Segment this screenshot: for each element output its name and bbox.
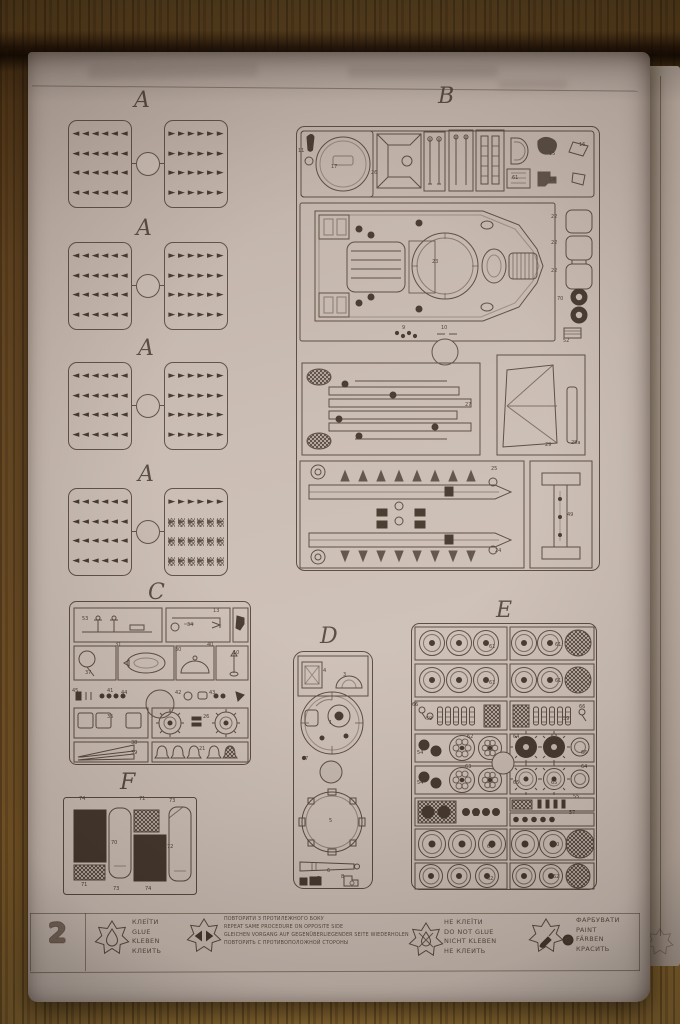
track-links-panel: ►►►►►►►►►►►►►►►►►►►►►►►►	[164, 362, 228, 450]
track-link-part: ►	[207, 372, 214, 381]
part-number: 15	[549, 152, 555, 157]
part-number: 16	[579, 143, 585, 148]
part-number: 37	[85, 671, 91, 676]
track-link-part: ◄	[92, 537, 99, 546]
legend-item-no-glue: НЕ КЛЕЇТИ DO NOT GLUE NICHT KLEBEN НЕ КЛ…	[444, 918, 496, 956]
track-link-part: ►	[188, 537, 195, 546]
track-link-part: ►	[168, 150, 175, 159]
part-number: 24	[495, 549, 501, 554]
track-link-part: ►	[207, 272, 214, 281]
track-link-part: ►	[207, 130, 214, 139]
track-link-part: ►	[217, 189, 224, 198]
track-link-part: ►	[178, 392, 185, 401]
track-link-part: ◄	[101, 498, 108, 507]
paint-badge-icon	[562, 934, 574, 946]
track-link-part: ►	[217, 431, 224, 440]
track-link-part: ◄	[82, 518, 89, 527]
track-link-part: ►	[207, 189, 214, 198]
track-link-part: ◄	[72, 411, 79, 420]
part-number: 7	[305, 757, 308, 762]
part-number: 62	[487, 877, 493, 882]
part-number: 57	[569, 811, 575, 816]
legend-text: НЕ КЛЕИТЬ	[444, 947, 496, 957]
track-link-part: ►	[197, 431, 204, 440]
legend-text: GLEICHEN VORGANG AUF GEGENÜBERLIEGENDER …	[224, 932, 409, 940]
track-link-part: ◄	[92, 130, 99, 139]
track-link-part: ►	[168, 392, 175, 401]
part-number: 64	[551, 735, 557, 740]
part-number: 54	[417, 781, 423, 786]
part-number: 64	[581, 765, 587, 770]
part-number: 61	[555, 679, 561, 684]
track-link-part: ►	[178, 537, 185, 546]
part-number: 55	[573, 795, 579, 800]
track-link-part: ►	[217, 411, 224, 420]
part-number: 43	[209, 691, 215, 696]
track-link-part: ◄	[111, 518, 118, 527]
part-number: 26	[371, 171, 377, 176]
track-link-part: ►	[188, 169, 195, 178]
track-link-part: ►	[168, 311, 175, 320]
track-link-part: ►	[197, 272, 204, 281]
track-link-part: ◄	[72, 130, 79, 139]
legend-text: КЛЕИТЬ	[132, 947, 161, 957]
track-link-part: ►	[207, 411, 214, 420]
sprue-label-d: D	[320, 624, 338, 649]
bleed-through-text	[498, 80, 568, 89]
sprue-b-drawing	[295, 125, 601, 572]
track-link-part: ►	[197, 372, 204, 381]
track-link-part: ►	[178, 291, 185, 300]
part-number: 71	[81, 883, 87, 888]
part-number: 66	[579, 705, 585, 710]
track-link-part: ◄	[121, 372, 128, 381]
track-link-part: ◄	[92, 498, 99, 507]
track-link-part: ◄	[82, 130, 89, 139]
legend-text: NICHT KLEBEN	[444, 937, 496, 947]
track-link-part: ►	[178, 252, 185, 261]
track-link-part: ►	[188, 498, 195, 507]
legend-divider	[85, 913, 86, 971]
track-link-part: ►	[168, 537, 175, 546]
paint-icon	[528, 918, 564, 954]
track-link-part: ◄	[111, 272, 118, 281]
track-link-part: ►	[217, 557, 224, 566]
track-link-part: ◄	[111, 498, 118, 507]
sprue-label-a4: A	[138, 462, 154, 487]
track-link-part: ◄	[101, 431, 108, 440]
track-link-part: ►	[207, 537, 214, 546]
track-link-part: ►	[197, 130, 204, 139]
part-number: 23	[432, 260, 438, 265]
track-link-part: ►	[178, 189, 185, 198]
track-links-panel: ►►►►►►►►►►►►►►►►►►►►►►►►	[164, 488, 228, 576]
track-link-part: ►	[188, 291, 195, 300]
track-link-part: ►	[168, 498, 175, 507]
instruction-sheet: A A A A B C D E F ◄◄◄◄◄◄◄◄◄◄◄◄◄◄◄◄◄◄◄◄◄◄…	[28, 52, 650, 1002]
track-link-part: ►	[197, 518, 204, 527]
legend-text: FÄRBEN	[576, 935, 620, 945]
track-link-part: ►	[207, 150, 214, 159]
part-number: 71	[139, 797, 145, 802]
part-number: 6	[327, 869, 330, 874]
page-number: 2	[48, 918, 67, 949]
part-number: 53	[82, 617, 88, 622]
track-link-part: ◄	[82, 311, 89, 320]
track-link-part: ◄	[121, 291, 128, 300]
sprue-label-b: B	[438, 84, 454, 109]
track-link-part: ►	[207, 498, 214, 507]
legend-text: ФАРБУВАТИ	[576, 916, 620, 926]
track-link-part: ►	[217, 272, 224, 281]
track-link-part: ◄	[111, 392, 118, 401]
track-link-part: ◄	[111, 537, 118, 546]
track-link-part: ◄	[121, 252, 128, 261]
part-number: 8	[341, 875, 344, 880]
track-link-part: ►	[188, 518, 195, 527]
track-link-part: ◄	[92, 372, 99, 381]
track-link-part: ►	[217, 372, 224, 381]
track-link-part: ►	[168, 411, 175, 420]
track-link-part: ◄	[92, 150, 99, 159]
track-link-part: ◄	[111, 431, 118, 440]
track-link-part: ◄	[121, 557, 128, 566]
track-link-part: ◄	[101, 150, 108, 159]
part-number: 9	[402, 326, 405, 331]
track-link-part: ◄	[111, 130, 118, 139]
track-link-part: ◄	[111, 189, 118, 198]
part-number: 1	[329, 721, 332, 726]
track-link-part: ◄	[72, 431, 79, 440]
part-number: 45	[72, 689, 78, 694]
track-link-part: ►	[188, 150, 195, 159]
track-link-part: ►	[168, 169, 175, 178]
part-number: 73	[169, 799, 175, 804]
legend-top-rule	[30, 913, 640, 914]
legend-item-glue: КЛЕЇТИ GLUE KLEBEN КЛЕИТЬ	[132, 918, 161, 956]
part-number: 74	[79, 797, 85, 802]
track-links-panel: ◄◄◄◄◄◄◄◄◄◄◄◄◄◄◄◄◄◄◄◄◄◄◄◄	[68, 120, 132, 208]
track-link-part: ◄	[111, 372, 118, 381]
track-link-part: ◄	[82, 252, 89, 261]
part-number: 35	[107, 715, 113, 720]
track-link-part: ◄	[92, 557, 99, 566]
legend-item-repeat: ПОВТОРИТИ З ПРОТИЛЕЖНОГО БОКУ REPEAT SAM…	[224, 916, 409, 948]
track-link-part: ►	[217, 311, 224, 320]
track-link-part: ◄	[82, 498, 89, 507]
part-number: 11	[298, 149, 304, 154]
track-link-part: ◄	[92, 411, 99, 420]
track-link-part: ◄	[121, 272, 128, 281]
track-link-part: ►	[178, 150, 185, 159]
track-links-panel: ◄◄◄◄◄◄◄◄◄◄◄◄◄◄◄◄◄◄◄◄◄◄◄◄	[68, 362, 132, 450]
part-number: 61	[555, 643, 561, 648]
track-link-part: ►	[197, 189, 204, 198]
track-link-part: ►	[217, 392, 224, 401]
track-link-part: ◄	[72, 537, 79, 546]
part-number: 61	[489, 645, 495, 650]
part-number: 70	[111, 841, 117, 846]
track-link-part: ►	[168, 252, 175, 261]
legend-text: KLEBEN	[132, 937, 161, 947]
track-link-part: ◄	[92, 189, 99, 198]
track-link-part: ►	[217, 518, 224, 527]
track-link-part: ►	[197, 498, 204, 507]
part-number: 21	[199, 747, 205, 752]
track-link-part: ◄	[101, 189, 108, 198]
part-number: 13	[213, 609, 219, 614]
sprue-d-drawing	[292, 650, 374, 890]
track-link-part: ►	[168, 557, 175, 566]
bleed-through-text	[348, 66, 498, 78]
part-number: 40	[207, 643, 213, 648]
track-link-part: ►	[188, 252, 195, 261]
track-links-panel: ◄◄◄◄◄◄◄◄◄◄◄◄◄◄◄◄◄◄◄◄◄◄◄◄	[68, 242, 132, 330]
track-link-part: ►	[217, 150, 224, 159]
track-link-part: ◄	[72, 557, 79, 566]
part-number: 39	[131, 751, 137, 756]
sprue-connector	[136, 152, 160, 176]
repeat-icon	[186, 918, 222, 954]
track-link-part: ►	[197, 291, 204, 300]
track-link-part: ◄	[92, 252, 99, 261]
track-link-part: ►	[207, 431, 214, 440]
track-link-part: ◄	[101, 557, 108, 566]
track-link-part: ►	[188, 189, 195, 198]
bleed-through-text	[88, 63, 258, 80]
part-number: 52	[563, 339, 569, 344]
track-link-part: ◄	[72, 311, 79, 320]
part-number: 60	[487, 845, 493, 850]
track-link-part: ◄	[82, 431, 89, 440]
track-link-part: ◄	[111, 411, 118, 420]
part-number: 49	[567, 513, 573, 518]
track-link-part: ◄	[82, 169, 89, 178]
sprue-e-drawing	[410, 622, 598, 892]
part-number: 60	[553, 843, 559, 848]
part-number: 63	[465, 765, 471, 770]
track-link-part: ◄	[121, 189, 128, 198]
track-link-part: ►	[217, 291, 224, 300]
part-number: 10	[233, 651, 239, 656]
track-link-part: ►	[188, 372, 195, 381]
sprue-connector	[136, 394, 160, 418]
part-number: 27	[465, 403, 471, 408]
track-link-part: ◄	[111, 557, 118, 566]
legend-text: КЛЕЇТИ	[132, 918, 161, 928]
track-link-part: ►	[188, 392, 195, 401]
track-link-part: ◄	[121, 150, 128, 159]
part-number: 22	[551, 241, 557, 246]
part-number: 28a	[571, 441, 580, 446]
legend-text: ПОВТОРИТЬ С ПРОТИВОПОЛОЖНОЙ СТОРОНЫ	[224, 940, 409, 948]
track-link-part: ◄	[101, 252, 108, 261]
part-number: 61	[512, 176, 518, 181]
track-link-part: ◄	[101, 311, 108, 320]
part-number: 54	[417, 751, 423, 756]
track-link-part: ►	[217, 537, 224, 546]
sprue-f-drawing	[62, 796, 198, 896]
track-link-part: ►	[207, 311, 214, 320]
part-number: 29	[545, 443, 551, 448]
track-link-part: ◄	[72, 392, 79, 401]
part-number: 14	[549, 178, 555, 183]
no-glue-icon	[408, 922, 444, 958]
track-link-part: ◄	[121, 130, 128, 139]
track-link-part: ◄	[121, 431, 128, 440]
track-link-part: ◄	[92, 392, 99, 401]
track-link-part: ◄	[92, 518, 99, 527]
track-link-part: ►	[178, 498, 185, 507]
part-number: 34	[187, 623, 193, 628]
track-link-part: ►	[188, 411, 195, 420]
part-number: 30	[175, 648, 181, 653]
track-link-part: ◄	[111, 252, 118, 261]
part-number: 41	[107, 689, 113, 694]
track-links-panel: ►►►►►►►►►►►►►►►►►►►►►►►►	[164, 120, 228, 208]
part-number: 59	[563, 717, 569, 722]
track-link-part: ◄	[121, 169, 128, 178]
track-link-part: ►	[178, 557, 185, 566]
track-link-part: ►	[197, 411, 204, 420]
track-link-part: ◄	[101, 169, 108, 178]
legend-text: КРАСИТЬ	[576, 945, 620, 955]
track-link-part: ◄	[121, 411, 128, 420]
part-number: 5	[317, 877, 320, 882]
track-link-part: ◄	[101, 291, 108, 300]
sprue-a-3: ◄◄◄◄◄◄◄◄◄◄◄◄◄◄◄◄◄◄◄◄◄◄◄◄ ►►►►►►►►►►►►►►►…	[68, 362, 228, 450]
track-link-part: ◄	[101, 537, 108, 546]
part-number: 22	[551, 269, 557, 274]
track-link-part: ◄	[101, 130, 108, 139]
part-number: 59	[426, 717, 432, 722]
track-link-part: ◄	[82, 272, 89, 281]
track-link-part: ◄	[72, 169, 79, 178]
legend-text: НЕ КЛЕЇТИ	[444, 918, 496, 928]
part-number: 10	[441, 326, 447, 331]
sprue-label-a1: A	[134, 88, 150, 113]
track-link-part: ◄	[92, 311, 99, 320]
sprue-a-4: ◄◄◄◄◄◄◄◄◄◄◄◄◄◄◄◄◄◄◄◄◄◄◄◄ ►►►►►►►►►►►►►►►…	[68, 488, 228, 576]
track-link-part: ◄	[101, 372, 108, 381]
track-link-part: ◄	[82, 372, 89, 381]
sprue-label-a3: A	[138, 336, 154, 361]
part-number: 64	[513, 735, 519, 740]
track-link-part: ◄	[82, 537, 89, 546]
track-link-part: ►	[178, 411, 185, 420]
legend-bottom-rule	[30, 970, 640, 973]
legend-text: GLUE	[132, 928, 161, 938]
track-link-part: ◄	[72, 291, 79, 300]
track-link-part: ►	[188, 272, 195, 281]
track-link-part: ►	[197, 150, 204, 159]
sprue-label-e: E	[496, 598, 512, 623]
track-link-part: ◄	[92, 291, 99, 300]
sprue-a-1: ◄◄◄◄◄◄◄◄◄◄◄◄◄◄◄◄◄◄◄◄◄◄◄◄ ►►►►►►►►►►►►►►►…	[68, 120, 228, 208]
part-number: 62	[467, 735, 473, 740]
track-link-part: ►	[207, 518, 214, 527]
sprue-c-drawing	[68, 600, 252, 766]
track-link-part: ►	[207, 291, 214, 300]
part-number: 4	[323, 669, 326, 674]
track-link-part: ►	[207, 169, 214, 178]
track-link-part: ►	[197, 392, 204, 401]
track-link-part: ►	[217, 252, 224, 261]
track-link-part: ►	[207, 252, 214, 261]
part-number: 56	[473, 813, 479, 818]
legend-text: DO NOT GLUE	[444, 928, 496, 938]
track-link-part: ◄	[101, 272, 108, 281]
track-link-part: ►	[197, 252, 204, 261]
part-number: 66	[412, 703, 418, 708]
track-link-part: ◄	[111, 291, 118, 300]
track-link-part: ►	[188, 557, 195, 566]
track-link-part: ◄	[82, 291, 89, 300]
part-number: 31	[115, 643, 121, 648]
track-link-part: ►	[168, 372, 175, 381]
track-link-part: ►	[188, 311, 195, 320]
track-link-part: ►	[168, 272, 175, 281]
track-links-panel: ◄◄◄◄◄◄◄◄◄◄◄◄◄◄◄◄◄◄◄◄◄◄◄◄	[68, 488, 132, 576]
track-link-part: ►	[178, 272, 185, 281]
legend-text: REPEAT SAME PROCEDURE ON OPPOSITE SIDE	[224, 924, 409, 932]
track-link-part: ►	[207, 557, 214, 566]
part-number: 62	[553, 875, 559, 880]
track-link-part: ◄	[121, 498, 128, 507]
sprue-label-a2: A	[136, 216, 152, 241]
track-link-part: ◄	[82, 150, 89, 159]
part-number: 44	[121, 691, 127, 696]
part-number: 42	[175, 691, 181, 696]
track-link-part: ►	[197, 557, 204, 566]
sprue-connector	[136, 274, 160, 298]
track-link-part: ►	[168, 518, 175, 527]
track-link-part: ◄	[82, 411, 89, 420]
sprue-label-f: F	[120, 770, 135, 795]
track-link-part: ◄	[101, 392, 108, 401]
part-number: 3	[343, 673, 346, 678]
part-number: 38	[131, 741, 137, 746]
track-link-part: ◄	[92, 272, 99, 281]
track-link-part: ◄	[72, 272, 79, 281]
part-number: 5	[329, 819, 332, 824]
part-number: 70	[557, 297, 563, 302]
track-link-part: ►	[197, 537, 204, 546]
part-number: 74	[145, 887, 151, 892]
partial-star-icon	[646, 928, 674, 956]
track-link-part: ◄	[121, 518, 128, 527]
part-number: 65	[551, 781, 557, 786]
track-link-part: ►	[197, 169, 204, 178]
track-link-part: ►	[217, 498, 224, 507]
track-link-part: ►	[168, 291, 175, 300]
track-link-part: ►	[188, 130, 195, 139]
sprue-a-2: ◄◄◄◄◄◄◄◄◄◄◄◄◄◄◄◄◄◄◄◄◄◄◄◄ ►►►►►►►►►►►►►►►…	[68, 242, 228, 330]
track-link-part: ►	[188, 431, 195, 440]
track-link-part: ◄	[111, 169, 118, 178]
part-number: 66	[581, 751, 587, 756]
track-link-part: ►	[178, 431, 185, 440]
track-link-part: ►	[168, 130, 175, 139]
track-link-part: ◄	[101, 518, 108, 527]
track-link-part: ►	[168, 431, 175, 440]
legend-text: ПОВТОРИТИ З ПРОТИЛЕЖНОГО БОКУ	[224, 916, 409, 924]
track-link-part: ◄	[101, 411, 108, 420]
track-link-part: ►	[178, 518, 185, 527]
part-number: 73	[113, 887, 119, 892]
track-link-part: ►	[178, 130, 185, 139]
track-link-part: ►	[178, 311, 185, 320]
